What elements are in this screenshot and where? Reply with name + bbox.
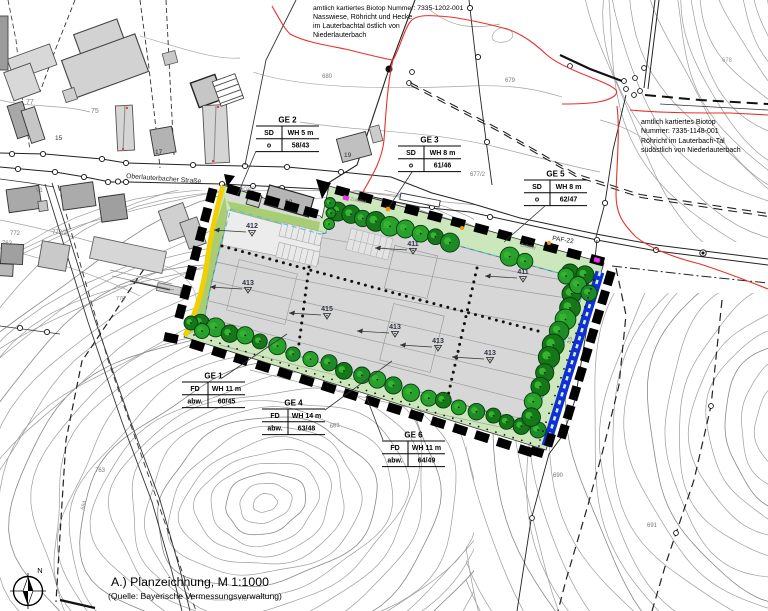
svg-text:amtlich kartiertes Biotop Numm: amtlich kartiertes Biotop Nummer: 7335-1… xyxy=(313,5,464,12)
svg-text:772: 772 xyxy=(10,231,21,237)
svg-text:o: o xyxy=(267,143,271,150)
svg-text:WH 11 m: WH 11 m xyxy=(212,386,241,393)
svg-text:15: 15 xyxy=(55,135,63,142)
svg-text:413: 413 xyxy=(484,350,496,357)
svg-text:WH 8 m: WH 8 m xyxy=(430,150,456,157)
svg-text:413: 413 xyxy=(432,338,444,345)
svg-text:91: 91 xyxy=(36,188,43,194)
svg-text:FD: FD xyxy=(270,413,279,420)
svg-text:WH 11 m: WH 11 m xyxy=(412,445,441,452)
svg-text:58/43: 58/43 xyxy=(292,143,310,150)
svg-text:GE 5: GE 5 xyxy=(546,170,565,179)
svg-text:603/2: 603/2 xyxy=(240,187,256,193)
svg-text:75: 75 xyxy=(91,108,99,115)
svg-text:411: 411 xyxy=(517,269,528,276)
svg-text:679: 679 xyxy=(505,78,516,84)
svg-text:amtlich kartiertes Biotop: amtlich kartiertes Biotop xyxy=(641,119,716,126)
svg-text:GE 3: GE 3 xyxy=(420,136,439,145)
svg-text:64/49: 64/49 xyxy=(418,458,436,465)
svg-text:abw.: abw. xyxy=(187,399,202,406)
svg-text:60/45: 60/45 xyxy=(218,399,236,406)
svg-text:GE 2: GE 2 xyxy=(278,116,297,125)
svg-text:WH 14 m: WH 14 m xyxy=(292,413,322,420)
svg-text:im Lauterbachtal östlich von: im Lauterbachtal östlich von xyxy=(313,23,400,30)
svg-text:17: 17 xyxy=(155,149,163,156)
svg-text:678: 678 xyxy=(722,58,733,64)
svg-text:415: 415 xyxy=(321,306,333,313)
svg-text:413: 413 xyxy=(389,324,401,331)
svg-text:(Quelle: Bayerische Vermessung: (Quelle: Bayerische Vermessungsverwaltun… xyxy=(108,591,282,601)
svg-text:abw.: abw. xyxy=(267,426,282,433)
svg-text:Niederlauterbach: Niederlauterbach xyxy=(313,32,366,39)
svg-text:412: 412 xyxy=(246,223,258,230)
svg-text:677/2: 677/2 xyxy=(470,172,486,178)
svg-text:62/47: 62/47 xyxy=(560,197,578,204)
svg-text:77: 77 xyxy=(26,99,34,106)
svg-text:A.) Planzeichnung, M 1:1000: A.) Planzeichnung, M 1:1000 xyxy=(111,575,269,589)
svg-text:61/46: 61/46 xyxy=(434,163,452,170)
svg-text:WH 8 m: WH 8 m xyxy=(556,184,582,191)
svg-text:413: 413 xyxy=(242,280,254,287)
svg-text:SD: SD xyxy=(532,184,542,191)
svg-text:763: 763 xyxy=(95,468,106,474)
svg-text:690: 690 xyxy=(553,473,564,479)
svg-text:GE 1: GE 1 xyxy=(204,372,223,381)
svg-text:südöstlich von Niederlauterbac: südöstlich von Niederlauterbach xyxy=(641,147,741,154)
svg-text:63/48: 63/48 xyxy=(298,426,316,433)
svg-text:772/2: 772/2 xyxy=(52,230,68,236)
svg-text:691: 691 xyxy=(647,523,658,529)
svg-text:411: 411 xyxy=(407,241,418,248)
svg-text:Nummer: 7335-1148-001: Nummer: 7335-1148-001 xyxy=(641,128,719,135)
svg-text:GE 4: GE 4 xyxy=(284,399,303,408)
svg-text:o: o xyxy=(409,163,413,170)
svg-text:680: 680 xyxy=(322,74,333,80)
svg-text:N: N xyxy=(37,566,42,575)
svg-text:abw.: abw. xyxy=(387,458,402,465)
svg-text:o: o xyxy=(535,197,539,204)
svg-text:SD: SD xyxy=(406,150,416,157)
svg-text:GE 6: GE 6 xyxy=(404,431,423,440)
svg-text:WH 5 m: WH 5 m xyxy=(288,130,314,137)
svg-text:SD: SD xyxy=(264,130,274,137)
svg-text:FD: FD xyxy=(190,386,199,393)
svg-text:Röhricht im Lauterbach-Tal: Röhricht im Lauterbach-Tal xyxy=(641,138,725,145)
svg-text:19: 19 xyxy=(344,152,352,159)
svg-text:762: 762 xyxy=(2,241,13,247)
svg-text:770: 770 xyxy=(116,296,125,302)
svg-text:FD: FD xyxy=(390,445,399,452)
svg-text:Nasswiese, Röhricht und Hecke: Nasswiese, Röhricht und Hecke xyxy=(313,14,412,21)
